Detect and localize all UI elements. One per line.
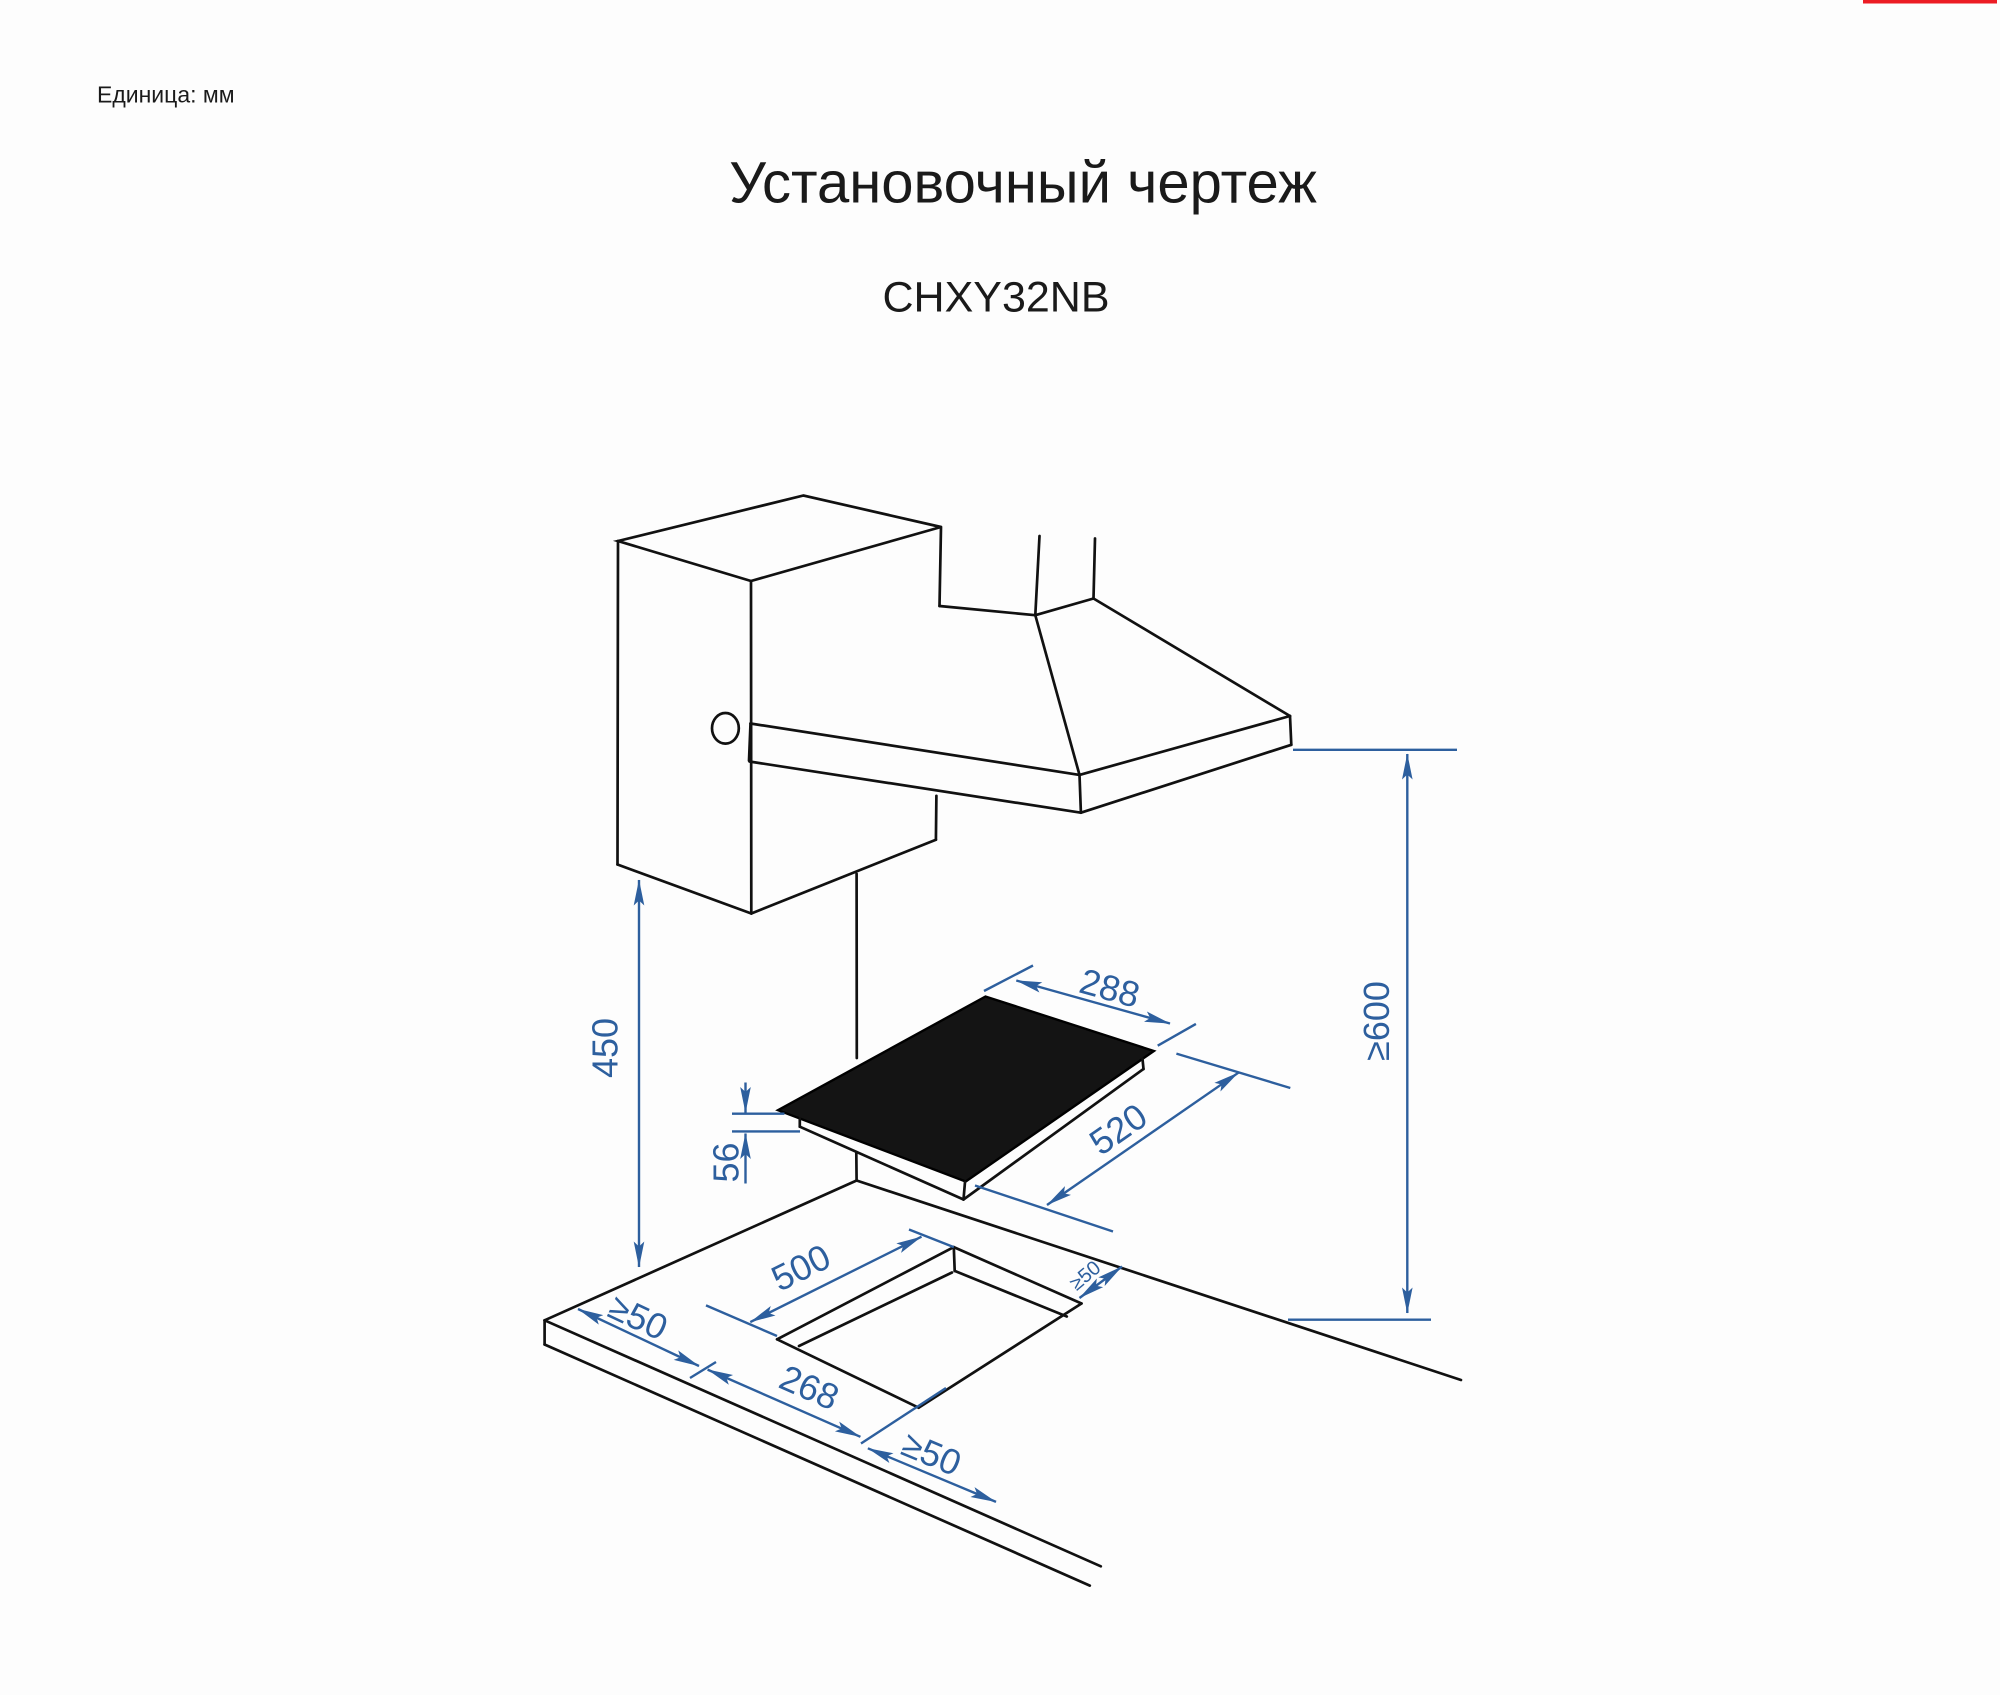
- svg-text:≥50: ≥50: [1066, 1257, 1106, 1295]
- svg-text:≥50: ≥50: [602, 1286, 674, 1349]
- svg-text:Установочный чертеж: Установочный чертеж: [729, 151, 1317, 216]
- svg-text:450: 450: [584, 1018, 625, 1078]
- svg-text:288: 288: [1075, 960, 1144, 1016]
- svg-text:Единица: мм: Единица: мм: [97, 82, 235, 108]
- svg-text:500: 500: [765, 1236, 837, 1299]
- svg-text:56: 56: [706, 1142, 747, 1182]
- svg-text:≥50: ≥50: [896, 1423, 967, 1484]
- svg-text:≥600: ≥600: [1356, 981, 1397, 1061]
- svg-text:CHXY32NB: CHXY32NB: [882, 274, 1109, 322]
